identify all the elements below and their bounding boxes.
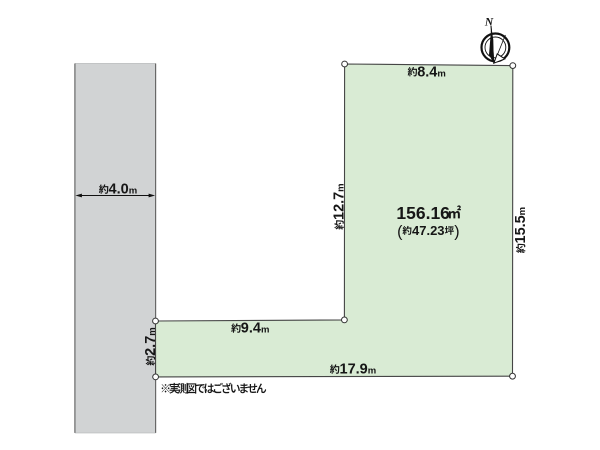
svg-text:8.4: 8.4 (417, 64, 437, 80)
svg-text:2.7: 2.7 (143, 336, 159, 356)
svg-text:m: m (261, 325, 269, 336)
svg-text:m: m (517, 207, 528, 215)
svg-text:m: m (336, 183, 347, 191)
svg-text:): ) (454, 223, 459, 240)
svg-text:m: m (368, 366, 376, 377)
svg-text:9.4: 9.4 (241, 321, 261, 337)
svg-text:17.9: 17.9 (340, 362, 368, 378)
svg-text:47.23: 47.23 (412, 223, 445, 238)
svg-text:12.7: 12.7 (332, 192, 348, 220)
svg-text:(: ( (397, 223, 403, 240)
svg-text:156.16: 156.16 (396, 203, 450, 223)
svg-text:m: m (437, 68, 445, 79)
svg-text:15.5: 15.5 (513, 215, 529, 243)
svg-text:m: m (147, 327, 158, 335)
svg-text:N: N (484, 17, 494, 29)
svg-text:m: m (129, 186, 137, 197)
svg-text:4.0: 4.0 (109, 182, 129, 198)
